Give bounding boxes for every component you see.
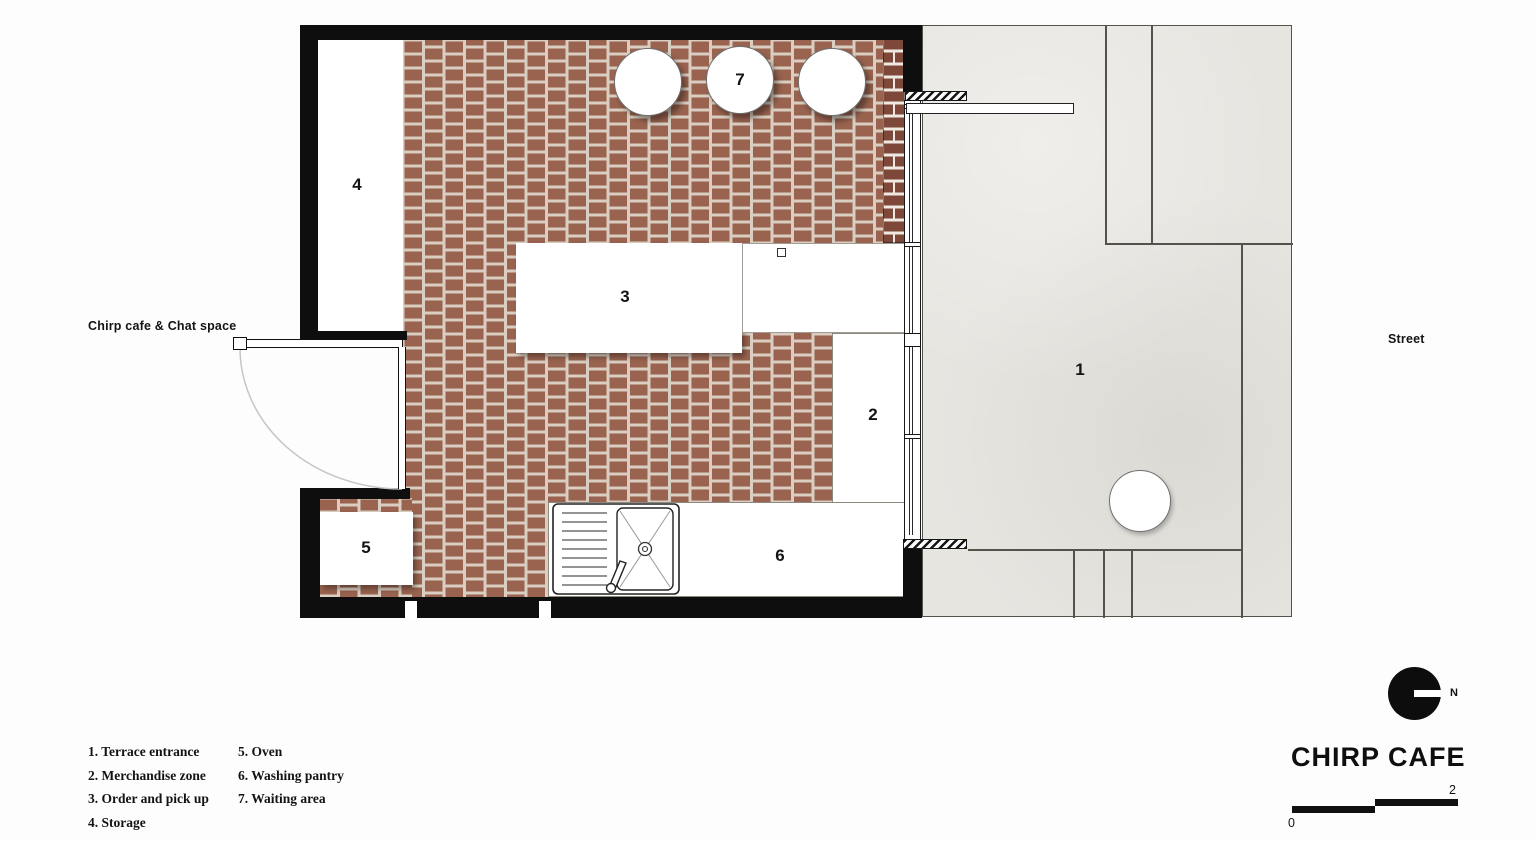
- window-glass-wall: [904, 100, 921, 540]
- window-frame-tick: [905, 434, 920, 439]
- paving-joint: [1073, 549, 1075, 618]
- left-space-label: Chirp cafe & Chat space: [88, 319, 236, 333]
- wall-notch: [539, 601, 551, 618]
- wall-left: [300, 25, 318, 338]
- room-label-storage: 4: [346, 175, 368, 195]
- wall-right-top: [903, 25, 922, 92]
- counter-fixture: [777, 248, 786, 257]
- room-label-order: 3: [614, 287, 636, 307]
- terrace-table: [1109, 470, 1171, 532]
- paving-joint: [1241, 243, 1243, 618]
- threshold-hatch-top: [905, 91, 967, 101]
- paving-joint: [1103, 549, 1105, 618]
- wall-top: [300, 25, 922, 40]
- sink-unit: [550, 501, 682, 597]
- room-label-waiting: 7: [729, 70, 751, 90]
- scale-min-label: 0: [1288, 816, 1295, 830]
- wall-bottom: [300, 597, 922, 618]
- room-label-washing: 6: [769, 546, 791, 566]
- waiting-table: [614, 48, 682, 116]
- door-jamb: [398, 347, 406, 489]
- street-label: Street: [1388, 332, 1425, 346]
- paving-joint: [1105, 243, 1293, 245]
- floor-plan-canvas: 1 2 3 4 5 6 7 Chirp cafe & Chat space St…: [0, 0, 1536, 841]
- brand-title: CHIRP CAFE: [1291, 742, 1466, 773]
- window-frame-tick: [905, 242, 920, 247]
- pickup-counter: [742, 243, 905, 333]
- wall-right-bottom: [903, 548, 922, 618]
- legend-item: 4. Storage: [88, 811, 209, 835]
- brick-bar-counter: [883, 38, 905, 243]
- threshold-hatch-bottom: [903, 539, 967, 549]
- scale-bar-left: [1292, 806, 1375, 813]
- legend-item: 2. Merchandise zone: [88, 764, 209, 788]
- north-indicator-slot: [1414, 690, 1441, 697]
- waiting-table: [798, 48, 866, 116]
- legend-item: 5. Oven: [238, 740, 344, 764]
- legend-column-1: 1. Terrace entrance 2. Merchandise zone …: [88, 740, 209, 834]
- room-label-oven: 5: [355, 538, 377, 558]
- legend-item: 7. Waiting area: [238, 787, 344, 811]
- north-label: N: [1450, 687, 1458, 699]
- paving-joint: [1105, 26, 1107, 243]
- exterior-bench: [906, 103, 1074, 114]
- paving-joint: [1131, 549, 1133, 618]
- legend-item: 3. Order and pick up: [88, 787, 209, 811]
- paving-joint: [1151, 26, 1153, 243]
- door-leaf: [233, 339, 403, 348]
- room-label-terrace: 1: [1069, 360, 1091, 380]
- door-swing-arc: [230, 340, 410, 495]
- legend-item: 6. Washing pantry: [238, 764, 344, 788]
- scale-bar-right: [1375, 799, 1458, 806]
- room-label-merchandise: 2: [862, 405, 884, 425]
- window-junction: [904, 333, 921, 347]
- paving-joint: [968, 549, 1242, 551]
- window-glazing-line: [909, 105, 913, 535]
- legend-column-2: 5. Oven 6. Washing pantry 7. Waiting are…: [238, 740, 344, 811]
- wall-notch: [405, 601, 417, 618]
- door-hinge: [233, 337, 247, 350]
- scale-max-label: 2: [1449, 783, 1456, 797]
- legend-item: 1. Terrace entrance: [88, 740, 209, 764]
